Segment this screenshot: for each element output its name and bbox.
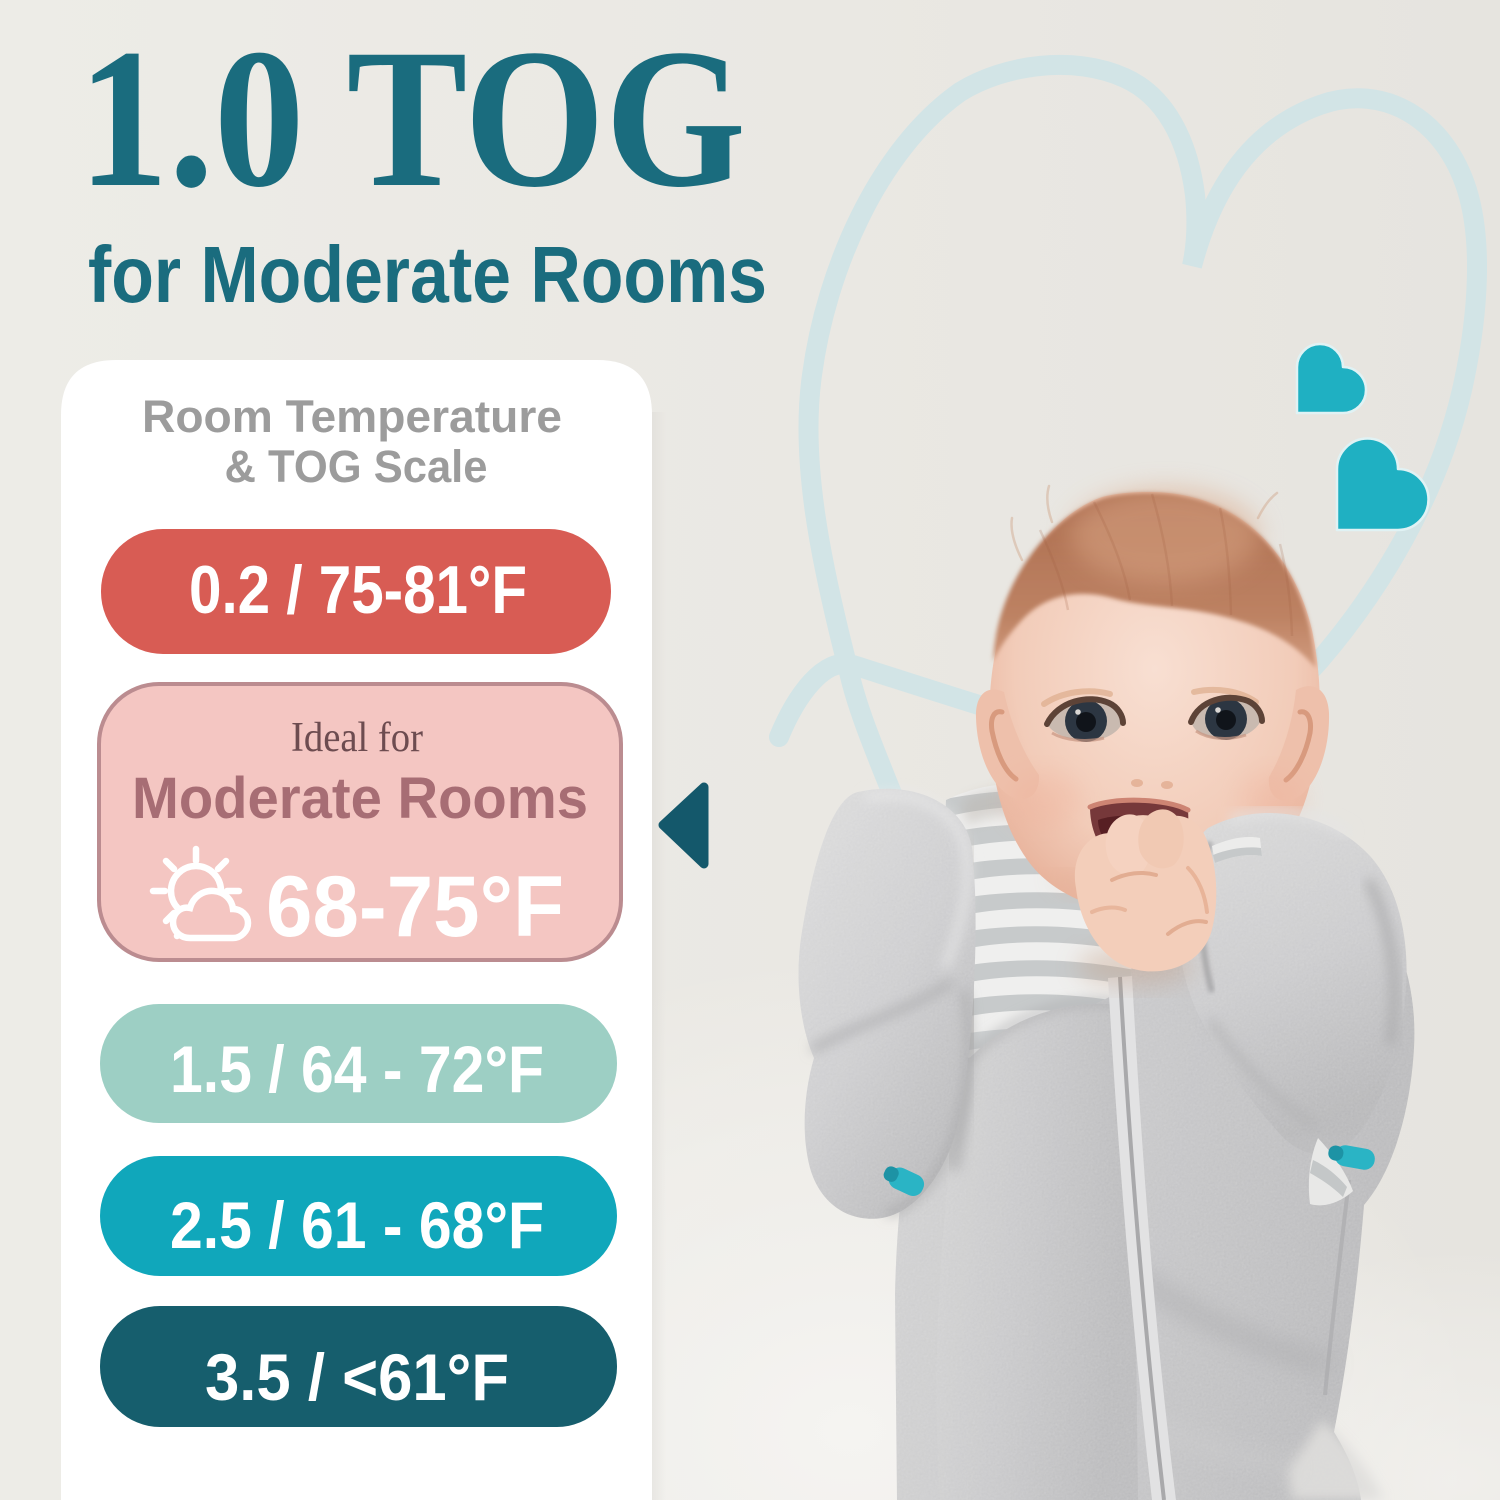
svg-text:Moderate Rooms: Moderate Rooms: [132, 766, 588, 831]
svg-text:Room Temperature: Room Temperature: [142, 391, 562, 442]
svg-text:2.5 / 61 - 68°F: 2.5 / 61 - 68°F: [170, 1188, 544, 1262]
svg-text:3.5 / <61°F: 3.5 / <61°F: [205, 1340, 509, 1414]
svg-text:1.0 TOG: 1.0 TOG: [78, 9, 746, 229]
svg-text:68-75°F: 68-75°F: [266, 859, 564, 955]
svg-text:1.5 / 64 - 72°F: 1.5 / 64 - 72°F: [170, 1032, 544, 1106]
svg-text:0.2 / 75-81°F: 0.2 / 75-81°F: [189, 552, 527, 628]
svg-text:Ideal for: Ideal for: [291, 715, 423, 761]
svg-text:for Moderate Rooms: for Moderate Rooms: [88, 230, 767, 319]
svg-text:& TOG Scale: & TOG Scale: [225, 441, 488, 492]
